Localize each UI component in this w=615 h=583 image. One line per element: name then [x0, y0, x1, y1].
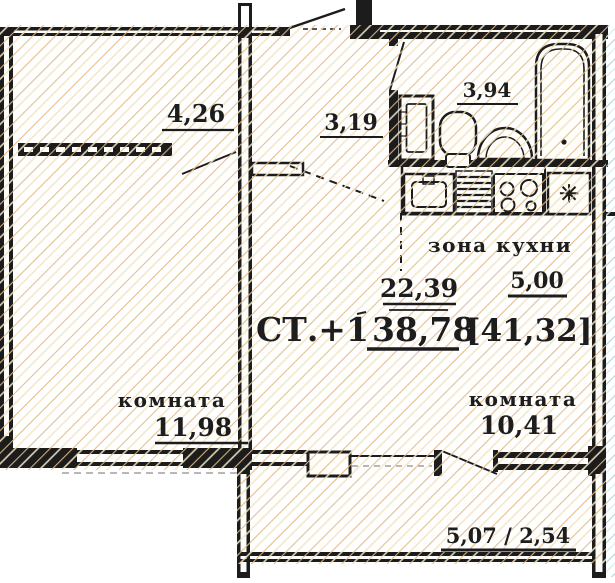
- living-combined-area-label: 22,39: [380, 274, 458, 303]
- hallway-area-label: 4,26: [167, 99, 225, 128]
- total-with-balcony-label: [41,32]: [466, 313, 592, 349]
- corridor-area-label: 3,19: [324, 110, 378, 136]
- kitchen-zone-label: зона кухни: [428, 233, 572, 257]
- neighbor-hatch: [606, 25, 615, 577]
- unit-type-label: СТ.+1: [256, 310, 369, 349]
- room-left-area-label: 11,98: [154, 413, 232, 442]
- kitchen-area-label: 5,00: [510, 268, 564, 294]
- total-area-label: 38,78: [372, 310, 475, 349]
- bathroom-area-label: 3,94: [463, 78, 512, 102]
- room-left-label: комната: [118, 388, 227, 412]
- room-right-label: комната: [469, 387, 578, 411]
- room-right-area-label: 10,41: [480, 411, 558, 440]
- floor-plan-page: ✳ 4,26 3,19 3,94 зона кухни 22,39 5,00 С…: [0, 0, 615, 583]
- balcony-area-label: 5,07 / 2,54: [446, 523, 571, 548]
- floor-plan: ✳ 4,26 3,19 3,94 зона кухни 22,39 5,00 С…: [0, 0, 615, 583]
